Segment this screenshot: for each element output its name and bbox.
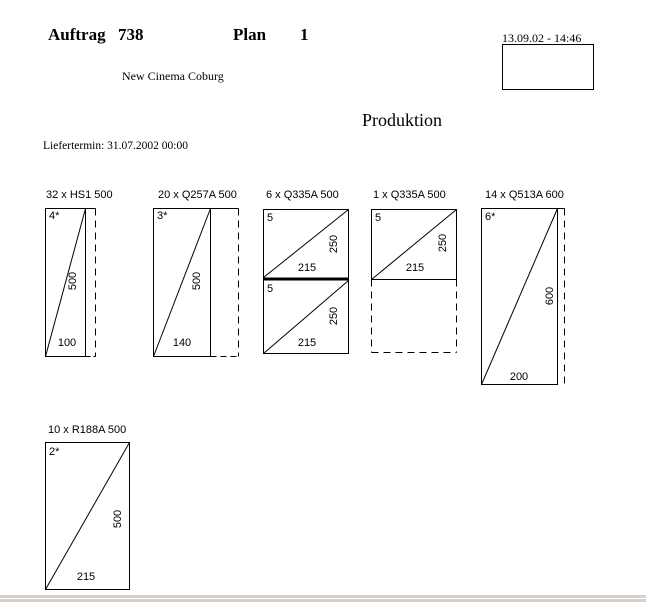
- panel-r188a-mark: 2*: [49, 446, 59, 458]
- panel-q335a-1-title: 1 x Q335A 500: [373, 189, 446, 201]
- panel-q335a-1-width-dim: 215: [406, 262, 424, 274]
- panel-q335a-6-cell2-width-dim: 215: [298, 337, 316, 349]
- panel-q335a-6-cell2-mark: 5: [267, 283, 273, 295]
- production-plan-page: Auftrag 738 Plan 1 13.09.02 - 14:46 New …: [0, 0, 646, 602]
- horizontal-scrollbar[interactable]: [0, 594, 646, 602]
- panel-q335a-1-height-dim: 250: [437, 234, 449, 252]
- panel-hs1-height-dim: 500: [67, 272, 79, 290]
- panel-q335a-6-cell1-mark: 5: [267, 212, 273, 224]
- panel-q513a-height-dim: 600: [544, 287, 556, 305]
- panel-hs1-title: 32 x HS1 500: [46, 189, 113, 201]
- panel-q513a-title: 14 x Q513A 600: [485, 189, 564, 201]
- panel-q335a-1-lines: [372, 210, 457, 353]
- panel-q257a-height-dim: 500: [191, 272, 203, 290]
- panel-hs1-width-dim: 100: [58, 337, 76, 349]
- panel-r188a-width-dim: 215: [77, 571, 95, 583]
- panel-q513a-width-dim: 200: [510, 371, 528, 383]
- panel-r188a-title: 10 x R188A 500: [48, 424, 126, 436]
- panel-q257a-title: 20 x Q257A 500: [158, 189, 237, 201]
- panel-q513a-mark: 6*: [485, 211, 495, 223]
- panel-q257a-width-dim: 140: [173, 337, 191, 349]
- panel-q335a-6-title: 6 x Q335A 500: [266, 189, 339, 201]
- panel-r188a-height-dim: 500: [112, 510, 124, 528]
- panel-hs1-mark: 4*: [49, 210, 59, 222]
- panel-q257a-mark: 3*: [157, 210, 167, 222]
- panel-q335a-1-mark: 5: [375, 212, 381, 224]
- panel-q335a-6-cell2-height-dim: 250: [328, 307, 340, 325]
- panel-q335a-6-lines: [264, 210, 349, 354]
- panel-q335a-6-cell1-width-dim: 215: [298, 262, 316, 274]
- panel-q335a-6-cell1-height-dim: 250: [328, 235, 340, 253]
